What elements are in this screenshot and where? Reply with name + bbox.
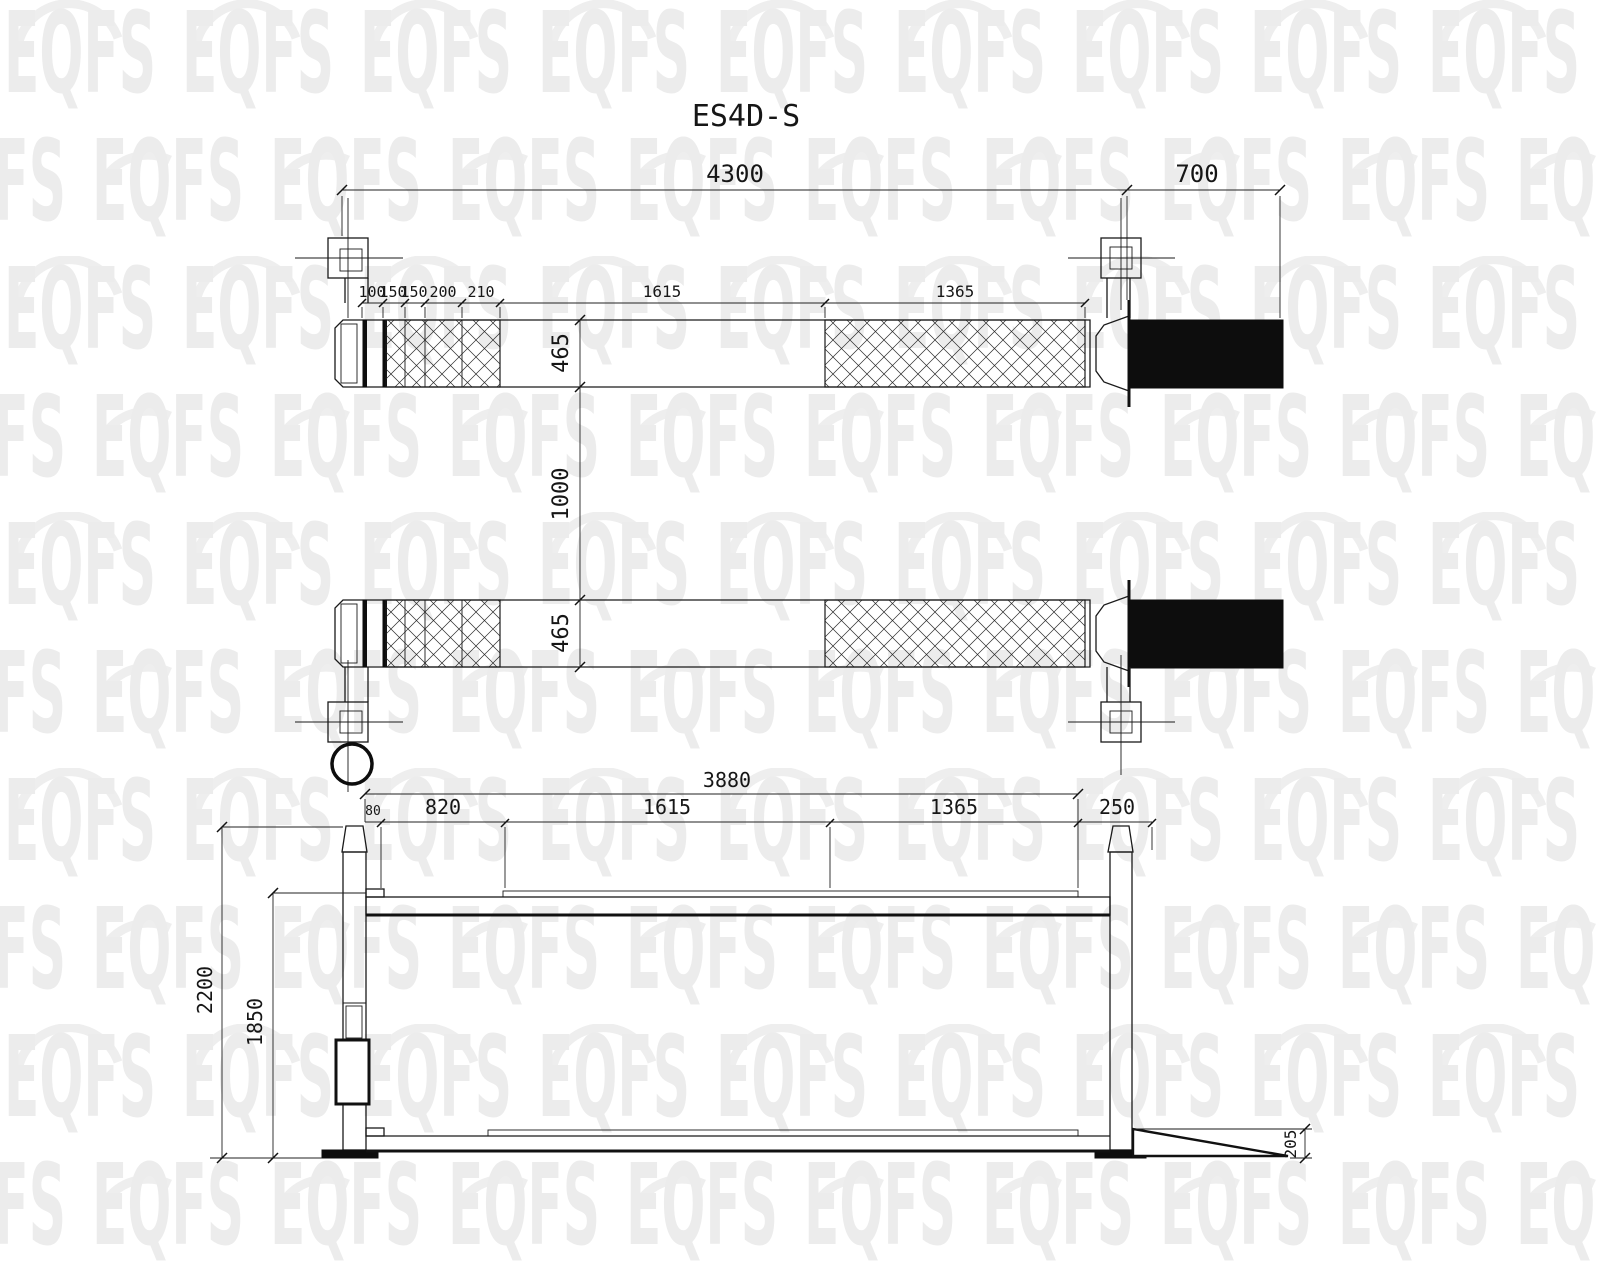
power-unit-box — [336, 1040, 369, 1104]
drive-on-ramp-bottom — [1129, 600, 1283, 668]
dim-label-1000: 1000 — [549, 468, 574, 521]
dim-label-465-top: 465 — [549, 333, 574, 373]
dim-label-1365-top: 1365 — [936, 282, 975, 301]
dim-label-700: 700 — [1175, 160, 1218, 188]
dim-label-205: 205 — [1281, 1130, 1300, 1159]
tread-plate-left — [386, 600, 500, 667]
tread-plate-right — [825, 600, 1085, 667]
tread-plate-right — [825, 320, 1085, 387]
drawing-title: ES4D-S — [692, 99, 800, 134]
dim-runway-widths: 465 1000 465 — [549, 315, 585, 672]
dim-label-465-bottom: 465 — [549, 613, 574, 653]
dim-label-1850: 1850 — [243, 998, 267, 1046]
dim-label-250: 250 — [1099, 795, 1135, 819]
dim-label-200: 200 — [429, 283, 456, 301]
dim-label-80: 80 — [365, 804, 381, 819]
stop-bar — [363, 320, 367, 387]
dim-label-2200: 2200 — [193, 966, 217, 1014]
dim-label-1615-side: 1615 — [643, 795, 691, 819]
dim-label-210: 210 — [467, 283, 494, 301]
dim-label-150b: 150 — [400, 283, 427, 301]
dim-label-1365-side: 1365 — [930, 795, 978, 819]
dim-label-820: 820 — [425, 795, 461, 819]
dim-label-1615-top: 1615 — [643, 282, 682, 301]
drawing-page: EQFS EQFS EQFS ES4D-S 4300 700 100 150 1… — [0, 0, 1600, 1280]
stop-bar — [363, 600, 367, 667]
drive-on-ramp-top — [1129, 320, 1283, 388]
tread-plate-left — [386, 320, 500, 387]
dim-label-4300: 4300 — [706, 160, 764, 188]
technical-drawing-canvas: EQFS EQFS EQFS ES4D-S 4300 700 100 150 1… — [0, 0, 1600, 1280]
dim-label-3880: 3880 — [703, 768, 751, 792]
watermark-layer — [0, 0, 1600, 1280]
